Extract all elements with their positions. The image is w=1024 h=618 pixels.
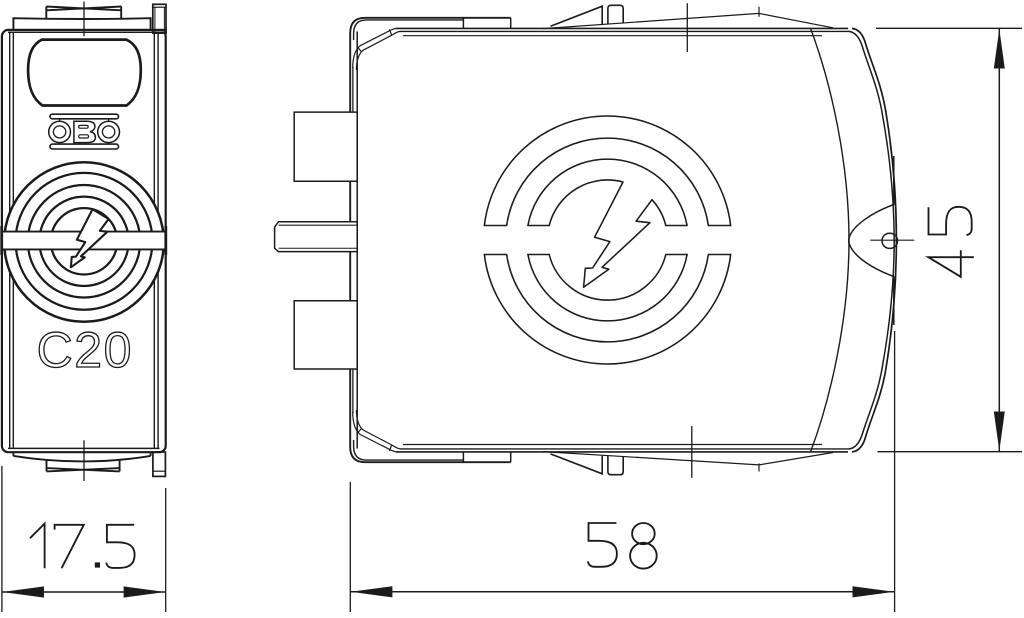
- svg-text:C20: C20: [37, 322, 133, 378]
